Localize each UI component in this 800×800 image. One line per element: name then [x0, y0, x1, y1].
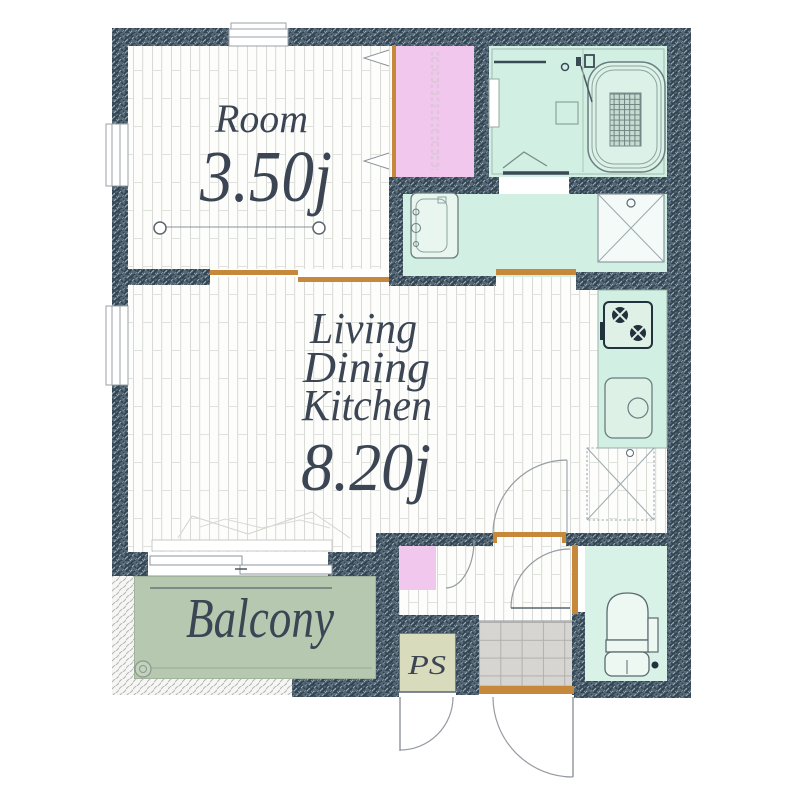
svg-text:3.50j: 3.50j: [199, 136, 332, 217]
svg-text:8.20j: 8.20j: [301, 429, 431, 505]
svg-text:PS: PS: [407, 650, 447, 680]
svg-text:Kitchen: Kitchen: [301, 381, 432, 430]
svg-text:Balcony: Balcony: [186, 588, 334, 650]
svg-text:Room: Room: [214, 96, 308, 141]
